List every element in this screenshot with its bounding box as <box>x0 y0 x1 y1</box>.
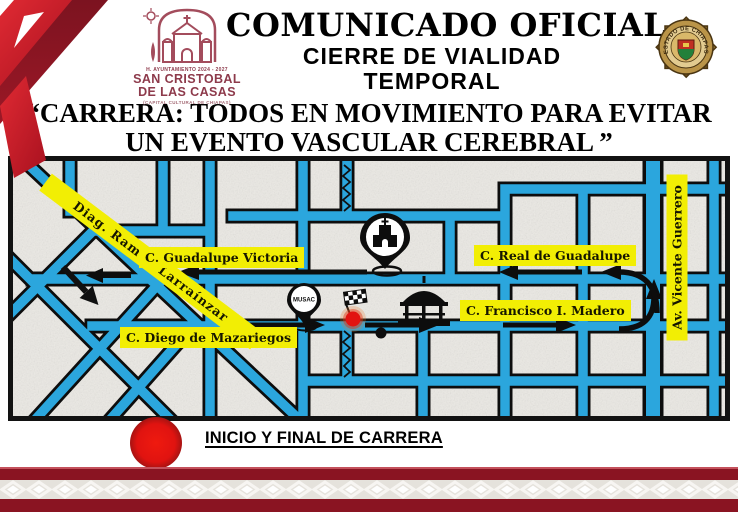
start-finish-dot <box>340 306 366 332</box>
band-stripe-bottom <box>0 499 738 512</box>
page-title: COMUNICADO OFICIAL <box>226 6 638 44</box>
legend-text: INICIO Y FINAL DE CARRERA <box>205 429 443 448</box>
badge-shield <box>678 40 694 60</box>
police-badge-icon: ESTADO DE CHIAPAS <box>640 3 732 95</box>
subtitle-line2: TEMPORAL <box>226 69 638 94</box>
start-finish-legend-dot <box>130 417 182 469</box>
street-label-guadalupe-victoria: C. Guadalupe Victoria <box>139 247 304 268</box>
street-label-francisco-madero: C. Francisco I. Madero <box>460 300 631 321</box>
subtitle-line1: CIERRE DE VIALIDAD <box>226 44 638 69</box>
band-textile-pattern <box>0 480 738 499</box>
header-titles: COMUNICADO OFICIAL CIERRE DE VIALIDAD TE… <box>226 6 638 94</box>
musac-label: MUSAC <box>293 298 316 304</box>
larrainzar-direction-arrow <box>53 259 123 329</box>
road-closure-poster: H. AYUNTAMIENTO 2024 - 2027 SAN CRISTOBA… <box>0 0 738 512</box>
logo-tagline: (CAPITAL CULTURAL DE CHIAPAS) <box>126 100 248 105</box>
route-map: MUSAC <box>8 156 730 421</box>
band-stripe-top <box>0 467 738 480</box>
church-logo-icon <box>127 4 247 64</box>
street-label-real-de-guadalupe: C. Real de Guadalupe <box>474 245 636 266</box>
logo-city-line2: DE LAS CASAS <box>126 86 248 99</box>
decorative-border <box>0 467 738 512</box>
municipal-logo: H. AYUNTAMIENTO 2024 - 2027 SAN CRISTOBA… <box>126 4 248 105</box>
street-label-diego-mazariegos: C. Diego de Mazariegos <box>120 327 297 348</box>
street-label-vicente-guerrero: Av. Vicente Guerrero <box>667 175 688 341</box>
